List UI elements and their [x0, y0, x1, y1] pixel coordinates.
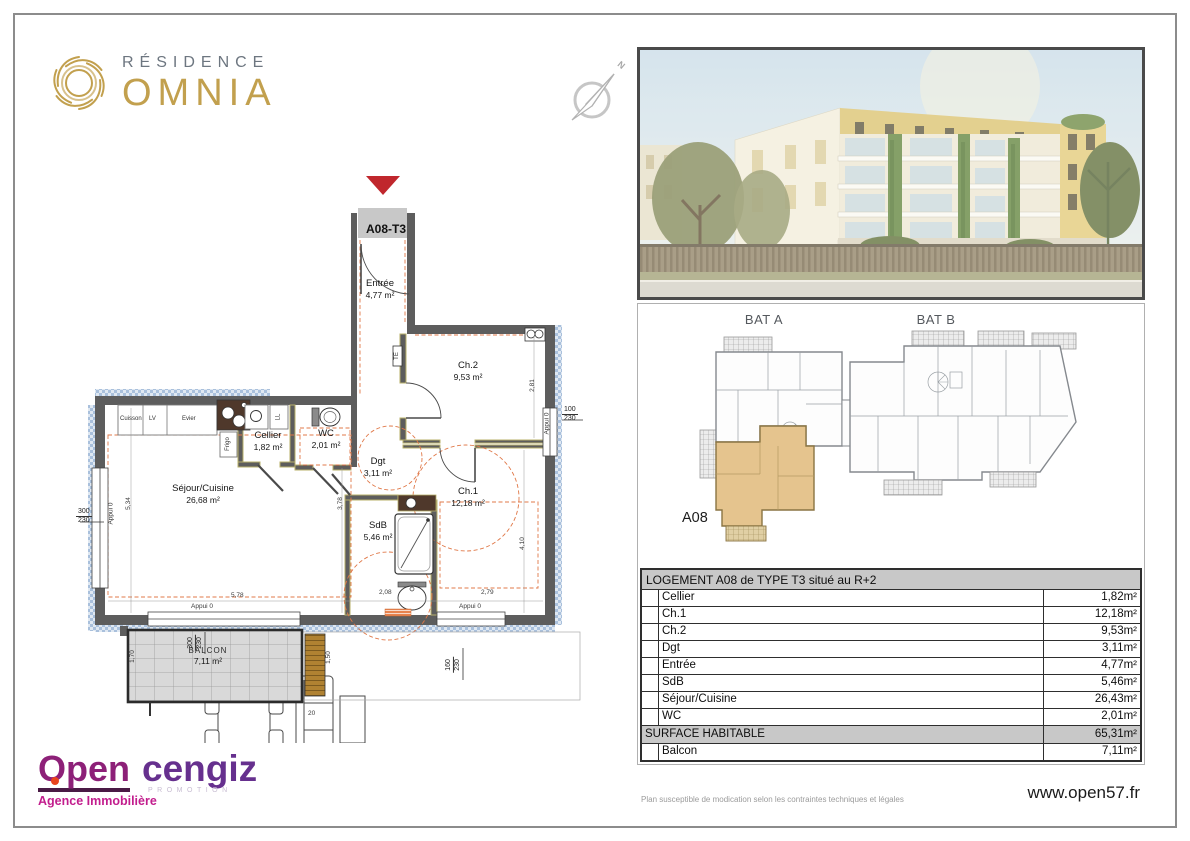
brand-omnia: OMNIA	[122, 74, 277, 112]
kitchen-label-cuisson: Cuisson	[120, 416, 142, 422]
room-label-dgt: Dgt 3,11 m²	[364, 456, 392, 479]
window-dim-100-230: 100 230	[562, 406, 578, 424]
table-row: Dgt 3,11m²	[642, 641, 1140, 658]
row-label: Entrée	[658, 658, 1043, 674]
website-link[interactable]: www.open57.fr	[1028, 783, 1140, 803]
dim-410: 4,10	[519, 537, 526, 550]
row-value: 26,43m²	[1043, 692, 1140, 708]
promoter-logo: cengiz PROMOTION	[142, 748, 257, 794]
row-label: WC	[658, 709, 1043, 725]
row-label: SdB	[658, 675, 1043, 691]
exterior-hatch	[88, 325, 562, 632]
row-value: 3,11m²	[1043, 641, 1140, 657]
brand-residence: RÉSIDENCE	[122, 54, 277, 72]
row-label: Séjour/Cuisine	[658, 692, 1043, 708]
row-value: 12,18m²	[1043, 607, 1140, 623]
room-label-ch2: Ch.2 9,53 m²	[454, 360, 483, 383]
window-dim-300-230: 300 230	[76, 508, 92, 526]
kitchen-label-ll: LL	[275, 414, 281, 421]
row-label: Cellier	[658, 590, 1043, 606]
table-row: WC 2,01m²	[642, 709, 1140, 726]
room-label-ch1: Ch.1 12,18 m²	[451, 486, 485, 509]
building-rendering	[640, 50, 1142, 297]
row-value: 7,11m²	[1043, 744, 1140, 760]
surface-value: 65,31m²	[1043, 726, 1140, 743]
room-label-cellier: Cellier 1,82 m²	[254, 430, 283, 453]
table-title: LOGEMENT A08 de TYPE T3 situé au R+2	[642, 570, 1140, 590]
unit-label: A08-T3	[358, 222, 414, 236]
appui-label-bottom-window: Appui 0	[459, 603, 481, 610]
keyplan-label-a08: A08	[682, 510, 708, 526]
row-value: 9,53m²	[1043, 624, 1140, 640]
appui-label-left: Appui 0	[108, 502, 115, 524]
dim-578: 5,78	[231, 592, 244, 599]
surface-total-row: SURFACE HABITABLE 65,31m²	[642, 726, 1140, 744]
promoter-name: cengiz	[142, 748, 257, 790]
surface-table: LOGEMENT A08 de TYPE T3 situé au R+2 Cel…	[640, 568, 1142, 762]
table-row: Entrée 4,77m²	[642, 658, 1140, 675]
dim-378: 3,78	[337, 497, 344, 510]
row-value: 1,82m²	[1043, 590, 1140, 606]
dim-20: 20	[308, 710, 315, 717]
dim-281: 2,81	[529, 379, 536, 392]
dim-279: 2,79	[481, 589, 494, 596]
kitchen-label-evier: Evier	[182, 416, 196, 422]
table-row: Cellier 1,82m²	[642, 590, 1140, 607]
row-label: Ch.1	[658, 607, 1043, 623]
agency-logo: Open Agence Immobilière	[38, 752, 157, 808]
floorplan-panel: A08-T3 Entrée 4,77 m² Ch.2 9,53 m² Celli…	[78, 168, 583, 743]
brand-logo: RÉSIDENCE OMNIA	[46, 50, 277, 116]
omnia-swirl-icon	[46, 50, 112, 116]
dim-170: 1,70	[129, 650, 136, 663]
agency-tagline: Agence Immobilière	[38, 794, 157, 808]
row-value: 4,77m²	[1043, 658, 1140, 674]
balcony-dim-300-230: 300 230	[187, 635, 205, 651]
row-label: Ch.2	[658, 624, 1043, 640]
kitchen-label-te: TE	[394, 352, 400, 360]
surface-label: SURFACE HABITABLE	[642, 726, 1043, 743]
keyplan-drawing	[638, 304, 1144, 564]
room-label-entree: Entrée 4,77 m²	[366, 278, 395, 301]
disclaimer-text: Plan susceptible de modication selon les…	[641, 795, 904, 804]
row-value: 5,46m²	[1043, 675, 1140, 691]
appui-label-balcony-door: Appui 0	[191, 603, 213, 610]
kitchen-label-frigo: Frigo	[225, 437, 231, 451]
window-dim-160-230: 160 230	[445, 657, 463, 673]
dim-208: 2,08	[379, 589, 392, 596]
brochure-page: RÉSIDENCE OMNIA N	[0, 0, 1190, 841]
row-label: Balcon	[658, 744, 1043, 760]
table-row: Ch.2 9,53m²	[642, 624, 1140, 641]
keyplan-label-bat-b: BAT B	[906, 312, 966, 327]
row-value: 2,01m²	[1043, 709, 1140, 725]
kitchen-label-lv: LV	[149, 416, 156, 422]
north-compass-icon: N	[556, 58, 632, 134]
agency-name: Open	[38, 752, 130, 792]
entry-direction-marker	[366, 176, 400, 195]
table-row: Séjour/Cuisine 26,43m²	[642, 692, 1140, 709]
agency-logo-dot-icon	[51, 777, 59, 785]
room-label-sdb: SdB 5,46 m²	[364, 520, 393, 543]
room-label-wc: WC 2,01 m²	[312, 428, 341, 451]
balcony-row: Balcon 7,11m²	[642, 744, 1140, 760]
table-row: SdB 5,46m²	[642, 675, 1140, 692]
row-label: Dgt	[658, 641, 1043, 657]
table-row: Ch.1 12,18m²	[642, 607, 1140, 624]
appui-label-right: Appui 0	[544, 412, 551, 434]
dim-150: 1,50	[325, 651, 332, 664]
keyplan-label-bat-a: BAT A	[734, 312, 794, 327]
building-photo	[637, 47, 1145, 300]
room-label-sejour: Séjour/Cuisine 26,68 m²	[172, 483, 234, 506]
dim-534: 5,34	[125, 497, 132, 510]
